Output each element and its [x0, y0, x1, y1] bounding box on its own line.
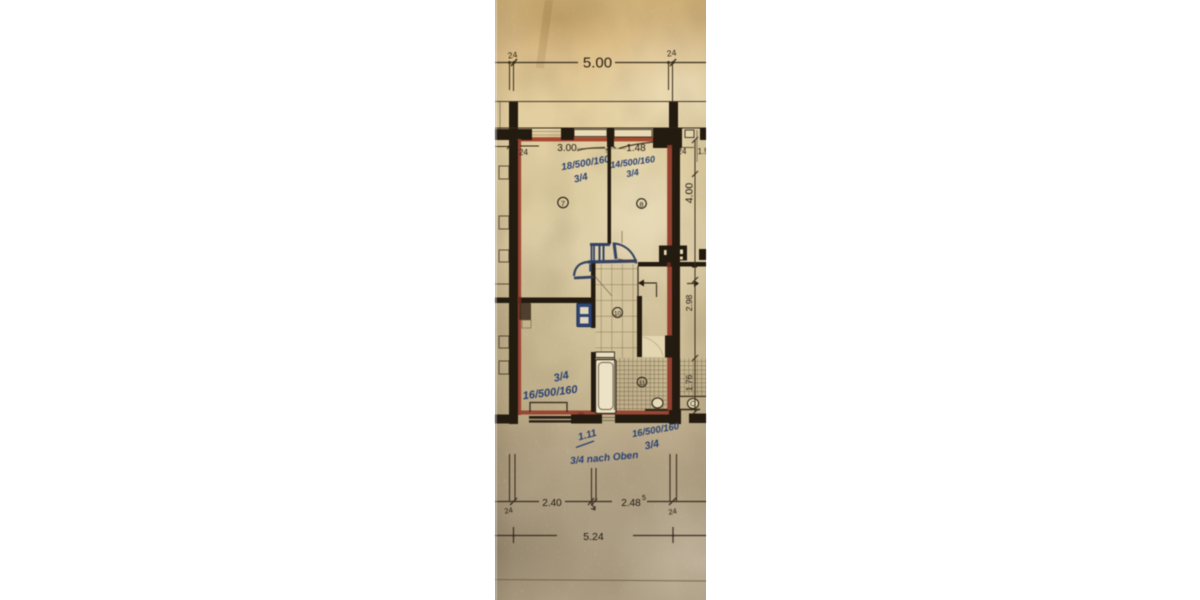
svg-text:2.40: 2.40	[542, 498, 562, 509]
svg-text:24: 24	[507, 49, 518, 60]
svg-text:3/4: 3/4	[625, 167, 639, 179]
svg-text:24: 24	[504, 505, 514, 515]
svg-text:1.48: 1.48	[626, 143, 646, 154]
svg-text:5: 5	[642, 495, 646, 502]
svg-text:90: 90	[578, 413, 584, 419]
svg-text:2.98: 2.98	[684, 294, 694, 311]
svg-text:11: 11	[639, 380, 646, 387]
svg-text:10: 10	[614, 310, 622, 317]
svg-text:8: 8	[639, 200, 643, 209]
svg-text:24: 24	[666, 47, 677, 58]
svg-text:1.76: 1.76	[684, 374, 694, 391]
svg-text:2.48: 2.48	[621, 498, 641, 509]
svg-text:5.24: 5.24	[583, 531, 604, 543]
svg-text:24: 24	[519, 148, 528, 157]
svg-text:3.00: 3.00	[557, 143, 577, 154]
svg-text:7: 7	[561, 199, 565, 208]
svg-text:4.00: 4.00	[684, 183, 696, 204]
svg-text:1.5: 1.5	[697, 147, 706, 156]
svg-text:5.00: 5.00	[583, 55, 612, 72]
svg-text:24: 24	[668, 506, 678, 516]
